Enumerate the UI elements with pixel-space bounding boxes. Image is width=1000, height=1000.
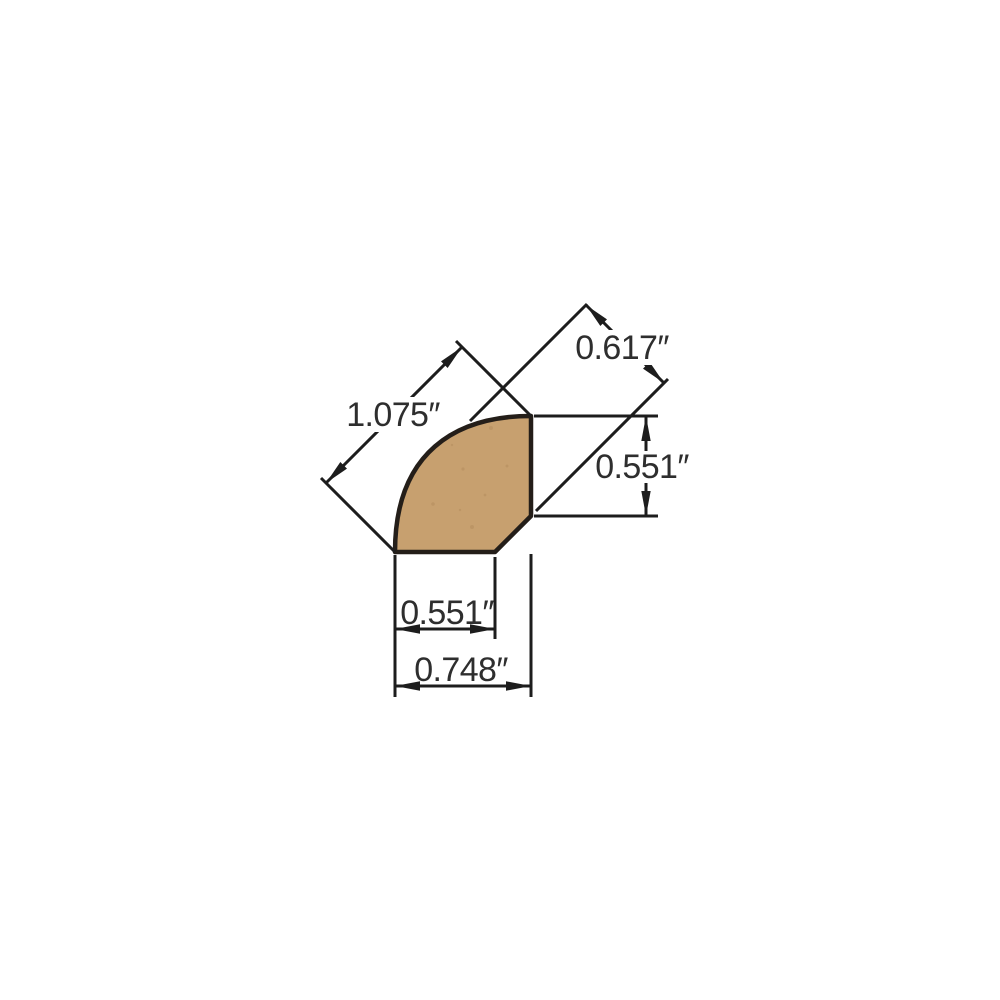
quarter-round-profile-shape (395, 416, 531, 552)
ext-line-diag-top (456, 341, 531, 416)
dimension-label-face-diagonal: 0.617″ (575, 329, 669, 367)
ext-line-chamfer (536, 379, 668, 511)
dimension-drawing-canvas: 0.617″ 1.075″ 0.551″ 0.551″ 0.748″ (0, 0, 1000, 1000)
ext-line-arc-tangent (470, 304, 587, 421)
dimension-label-bottom-width: 0.551″ (400, 594, 494, 632)
dimension-label-overall-width: 0.748″ (414, 651, 508, 689)
dimension-label-side-height: 0.551″ (595, 448, 689, 486)
dimension-label-overall-diagonal: 1.075″ (346, 396, 440, 434)
ext-line-diag-bottom (321, 478, 395, 552)
product-dimension-diagram: 0.617″ 1.075″ 0.551″ 0.551″ 0.748″ (0, 0, 1000, 1000)
